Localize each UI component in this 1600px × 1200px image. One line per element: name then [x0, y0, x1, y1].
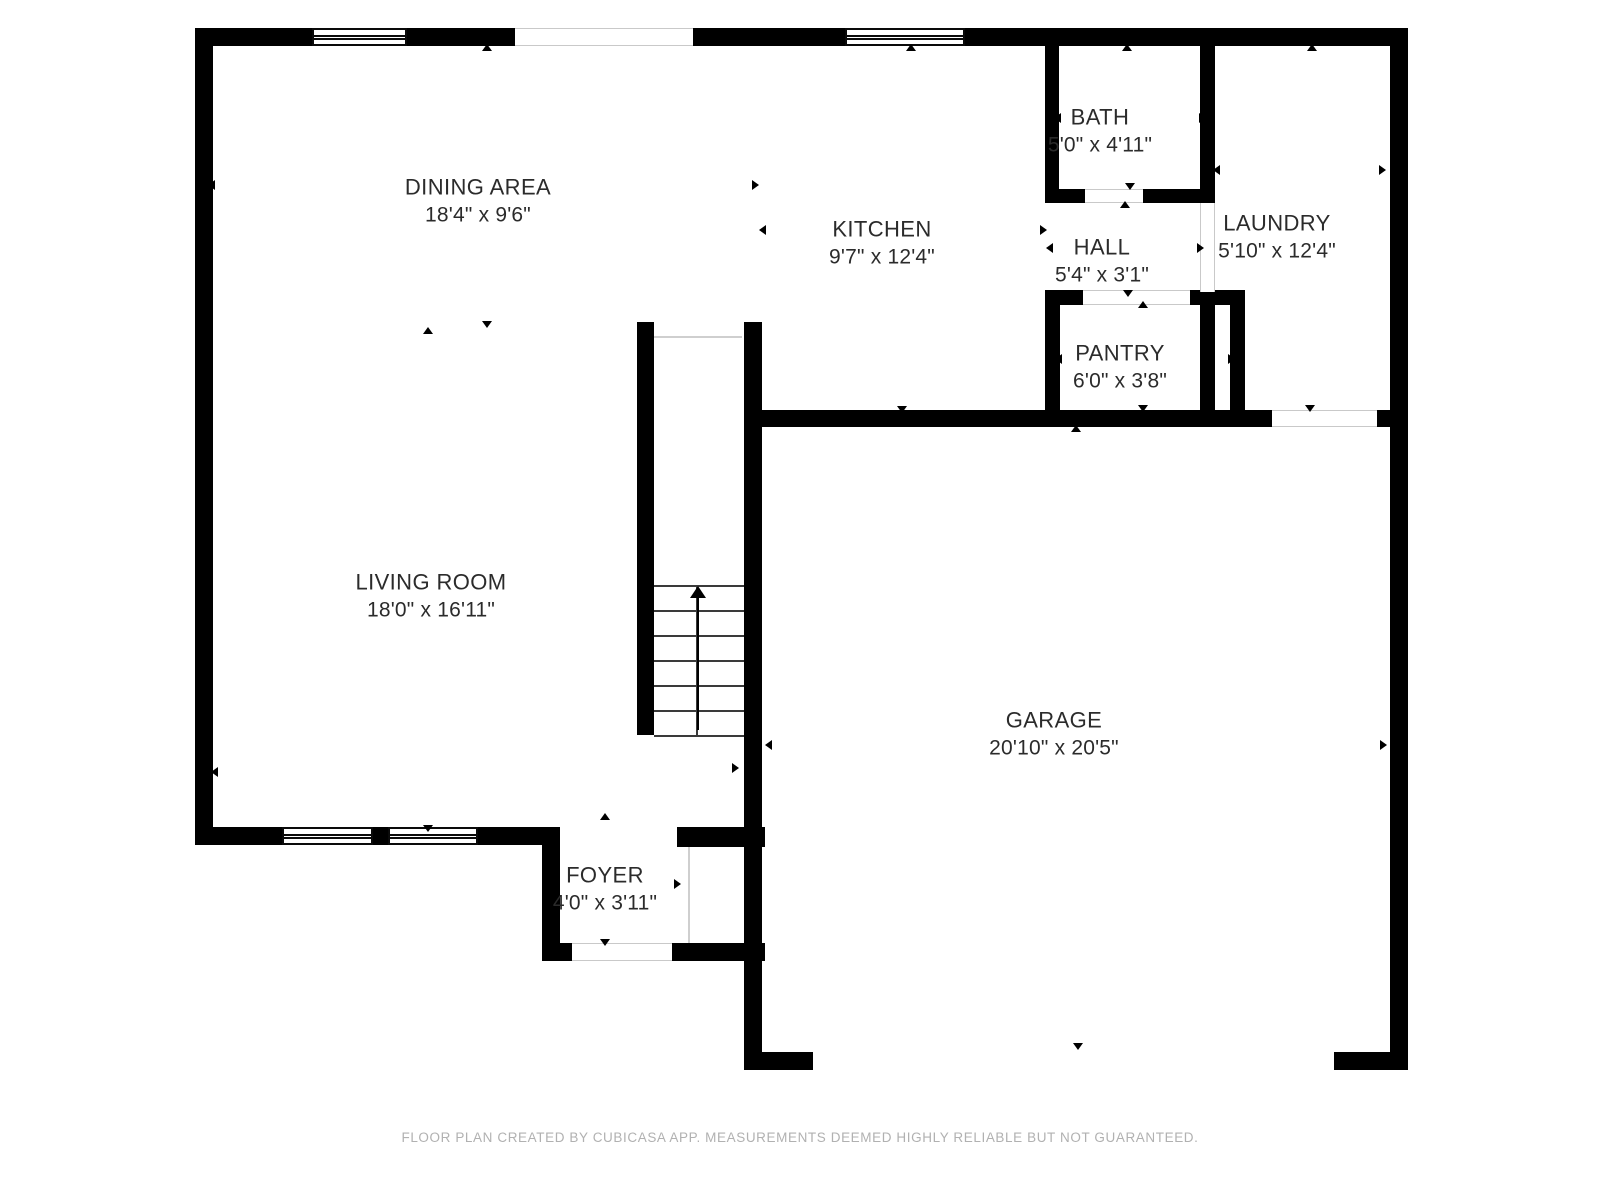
window	[312, 28, 407, 46]
wall	[195, 28, 213, 845]
room-name: LIVING ROOM	[355, 568, 506, 597]
measure-arrow-down	[1305, 405, 1315, 412]
room-dimensions: 18'0" x 16'11"	[355, 597, 506, 625]
stair-tread	[654, 735, 744, 737]
measure-arrow-down	[482, 321, 492, 328]
measure-arrow-up	[482, 44, 492, 51]
room-name: HALL	[1055, 233, 1149, 262]
measure-arrow-right	[752, 180, 759, 190]
measure-arrow-left	[759, 225, 766, 235]
window-pane-line	[284, 837, 371, 839]
room-label-pantry: PANTRY6'0" x 3'8"	[1073, 339, 1167, 396]
measure-arrow-up	[600, 813, 610, 820]
measure-arrow-right	[674, 879, 681, 889]
wall	[373, 827, 388, 845]
wall	[1334, 1052, 1408, 1070]
room-dimensions: 18'4" x 9'6"	[405, 202, 551, 230]
measure-arrow-up	[1138, 301, 1148, 308]
measure-arrow-right	[1379, 165, 1386, 175]
measure-arrow-right	[1040, 225, 1047, 235]
wall	[693, 28, 845, 46]
wall-opening	[1085, 189, 1143, 203]
wall	[762, 410, 1272, 427]
stair-up-arrow-shaft	[697, 598, 699, 730]
measure-arrow-up	[1307, 44, 1317, 51]
stair-tread	[654, 660, 744, 662]
opening-line	[654, 336, 742, 338]
window-pane-line	[314, 35, 405, 37]
stair-up-arrow-head	[690, 586, 706, 598]
room-dimensions: 6'0" x 3'8"	[1073, 368, 1167, 396]
measure-arrow-right	[1380, 740, 1387, 750]
room-name: BATH	[1048, 103, 1152, 132]
stair-tread	[654, 685, 744, 687]
room-name: DINING AREA	[405, 173, 551, 202]
floor-plan: DINING AREA18'4" x 9'6"KITCHEN9'7" x 12'…	[0, 0, 1600, 1200]
room-label-hall: HALL5'4" x 3'1"	[1055, 233, 1149, 290]
window-pane-line	[390, 834, 476, 836]
room-label-foyer: FOYER4'0" x 3'11"	[553, 861, 657, 918]
room-dimensions: 5'10" x 12'4"	[1218, 238, 1336, 266]
measure-arrow-down	[1123, 290, 1133, 297]
measure-arrow-down	[1138, 405, 1148, 412]
room-label-garage: GARAGE20'10" x 20'5"	[989, 706, 1119, 763]
wall	[744, 322, 762, 1070]
measure-arrow-right	[1199, 113, 1206, 123]
measure-arrow-left	[1046, 243, 1053, 253]
wall	[1200, 46, 1215, 203]
footer-disclaimer: FLOOR PLAN CREATED BY CUBICASA APP. MEAS…	[0, 1130, 1600, 1145]
measure-arrow-left	[208, 180, 215, 190]
room-name: PANTRY	[1073, 339, 1167, 368]
room-name: LAUNDRY	[1218, 209, 1336, 238]
measure-arrow-up	[906, 44, 916, 51]
room-dimensions: 20'10" x 20'5"	[989, 735, 1119, 763]
measure-arrow-down	[1125, 183, 1135, 190]
opening-line	[688, 847, 690, 943]
room-name: KITCHEN	[829, 215, 935, 244]
measure-arrow-down	[1073, 1043, 1083, 1050]
wall-opening	[1272, 410, 1377, 427]
room-dimensions: 5'4" x 3'1"	[1055, 262, 1149, 290]
wall	[1045, 189, 1085, 203]
window	[282, 827, 373, 845]
measure-arrow-down	[600, 939, 610, 946]
room-label-kitchen: KITCHEN9'7" x 12'4"	[829, 215, 935, 272]
wall	[1377, 410, 1391, 427]
wall	[1390, 28, 1408, 425]
window-pane-line	[847, 35, 963, 37]
window-pane-line	[314, 38, 405, 40]
wall-opening	[515, 28, 693, 46]
window-pane-line	[284, 834, 371, 836]
wall	[542, 943, 572, 961]
stair-tread	[654, 610, 744, 612]
measure-arrow-down	[897, 406, 907, 413]
measure-arrow-up	[1071, 425, 1081, 432]
stair-tread	[654, 635, 744, 637]
room-label-living-room: LIVING ROOM18'0" x 16'11"	[355, 568, 506, 625]
measure-arrow-up	[1120, 201, 1130, 208]
room-label-bath: BATH5'0" x 4'11"	[1048, 103, 1152, 160]
wall	[407, 28, 515, 46]
room-label-dining-area: DINING AREA18'4" x 9'6"	[405, 173, 551, 230]
window-pane-line	[390, 837, 476, 839]
measure-arrow-right	[1197, 243, 1204, 253]
stair-tread	[654, 710, 744, 712]
measure-arrow-right	[1228, 354, 1235, 364]
wall-opening	[1083, 290, 1190, 305]
measure-arrow-right	[732, 763, 739, 773]
wall	[762, 1052, 813, 1070]
room-name: GARAGE	[989, 706, 1119, 735]
wall	[1200, 292, 1215, 410]
window	[845, 28, 965, 46]
window-pane-line	[847, 38, 963, 40]
measure-arrow-down	[423, 825, 433, 832]
wall	[195, 827, 282, 845]
measure-arrow-left	[765, 740, 772, 750]
room-dimensions: 5'0" x 4'11"	[1048, 132, 1152, 160]
room-name: FOYER	[553, 861, 657, 890]
measure-arrow-left	[211, 767, 218, 777]
room-label-laundry: LAUNDRY5'10" x 12'4"	[1218, 209, 1336, 266]
measure-arrow-left	[1213, 165, 1220, 175]
measure-arrow-left	[1055, 354, 1062, 364]
wall	[1390, 410, 1408, 1070]
room-dimensions: 4'0" x 3'11"	[553, 890, 657, 918]
measure-arrow-up	[1122, 44, 1132, 51]
measure-arrow-up	[423, 327, 433, 334]
wall	[965, 28, 1408, 46]
window	[388, 827, 478, 845]
wall-opening	[572, 943, 672, 961]
wall	[637, 322, 654, 735]
room-dimensions: 9'7" x 12'4"	[829, 244, 935, 272]
